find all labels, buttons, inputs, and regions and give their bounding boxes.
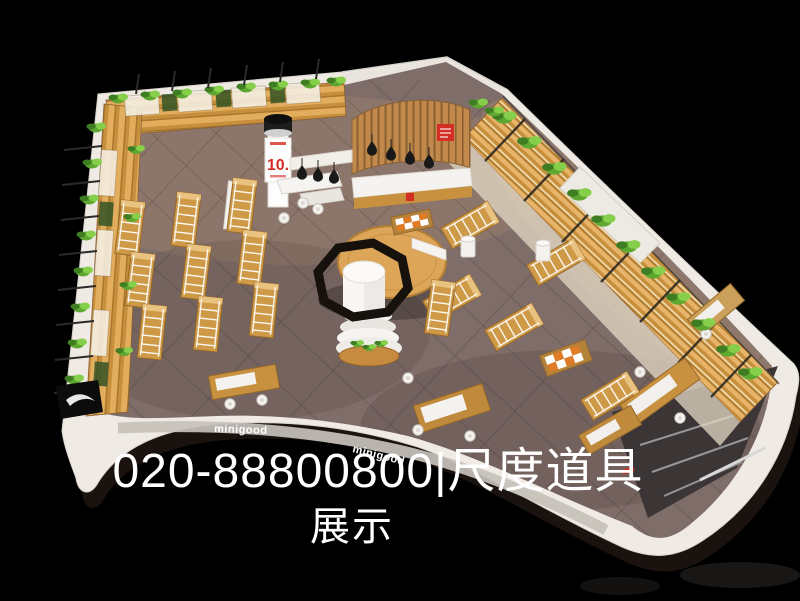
chair [413, 425, 423, 435]
white-canister [461, 236, 475, 257]
counter-logo-chip [406, 193, 414, 201]
gondola-shelf [249, 282, 279, 338]
store-render: 10. [0, 0, 800, 601]
floor-reflection [580, 577, 660, 595]
chair [225, 399, 235, 409]
gondola-shelf [137, 304, 167, 360]
gondola-shelf [193, 296, 223, 352]
chair [279, 213, 289, 223]
chair [675, 413, 685, 423]
chair [313, 204, 323, 214]
column-banner-number: 10. [267, 157, 289, 174]
chair [257, 395, 267, 405]
chair [635, 367, 645, 377]
watermark-line2: 展示 [310, 505, 394, 549]
fascia-brand-text: minigood [214, 423, 268, 437]
chair [298, 198, 308, 208]
chair [465, 431, 475, 441]
watermark-line1: 020-88800800|尺度道具 [112, 445, 643, 498]
store-render-canvas: 10. [0, 0, 800, 601]
white-canister [536, 240, 550, 261]
chair [403, 373, 413, 383]
floor-reflection [680, 562, 800, 588]
